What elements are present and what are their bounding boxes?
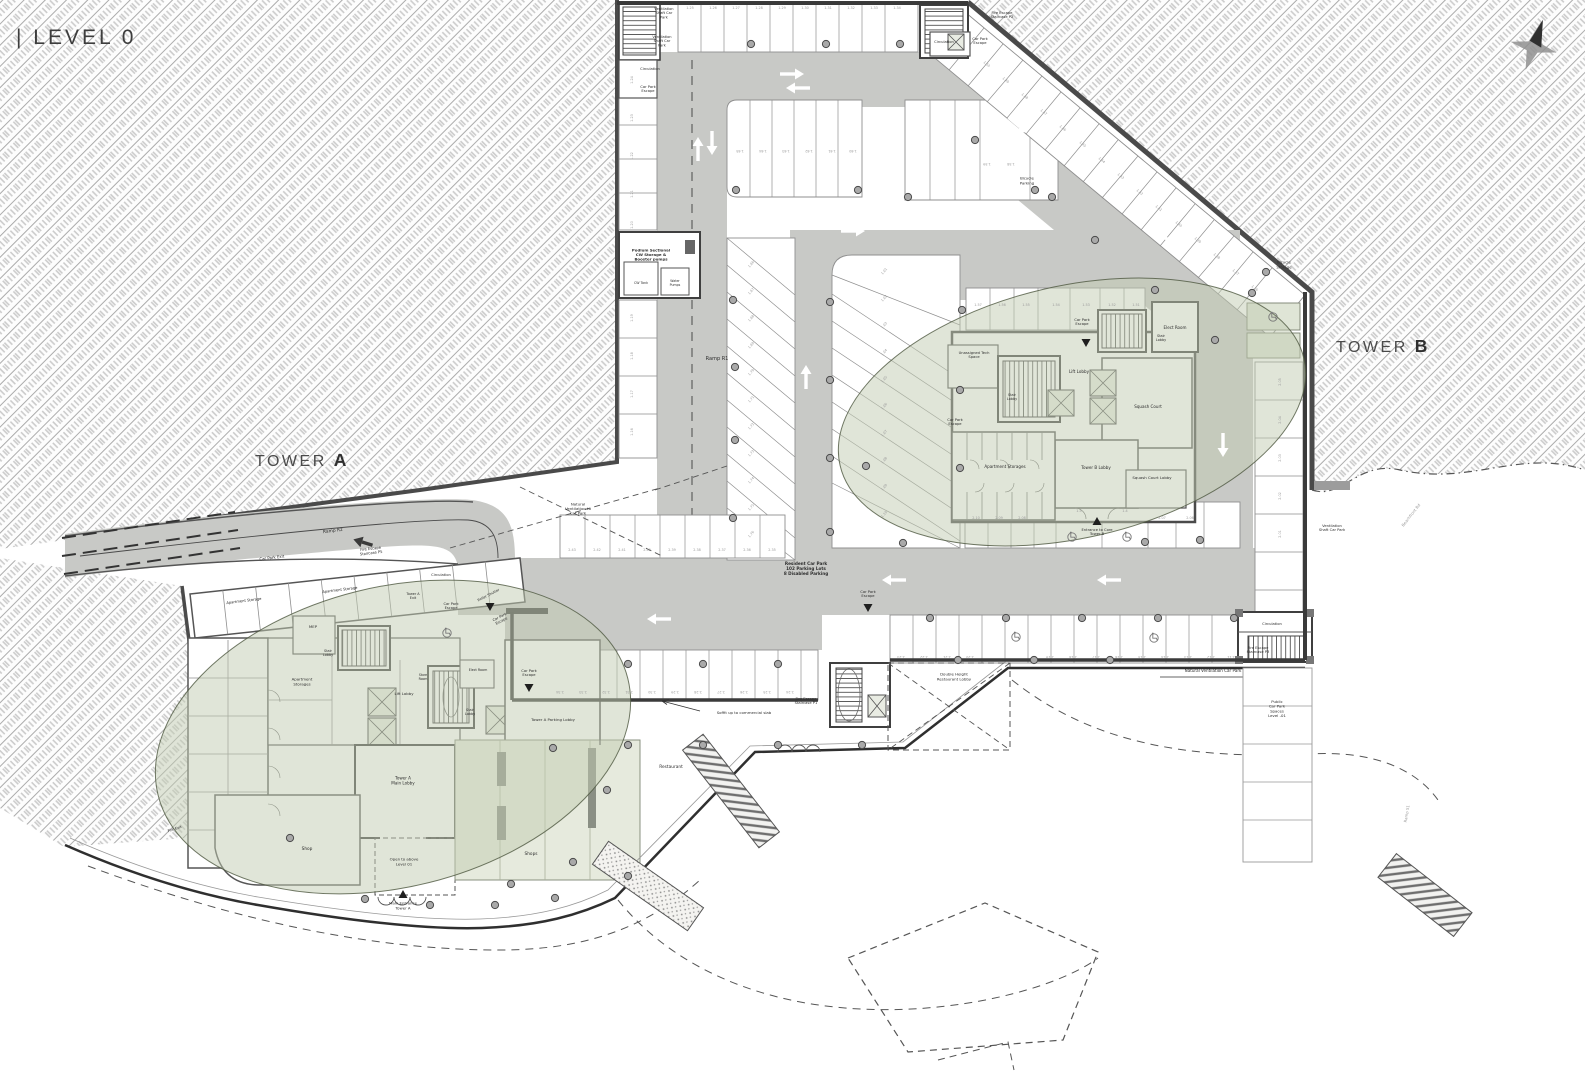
parking-space-number: 1.57: [974, 303, 982, 307]
column-dot: [699, 660, 706, 667]
parking-space-number: 1.58: [1007, 162, 1015, 166]
plan-label: Natural Ventilation Car Park: [1185, 668, 1242, 673]
column-dot: [491, 901, 498, 908]
column-dot: [899, 539, 906, 546]
plan-label: Circulation: [431, 573, 451, 577]
column-dot: [1048, 193, 1055, 200]
parking-space-number: 2.04: [1278, 416, 1282, 424]
column-dot: [361, 895, 368, 902]
column-dot: [1196, 536, 1203, 543]
column-dot: [551, 894, 558, 901]
column-dot: [1262, 268, 1269, 275]
plan-label: Circulation: [934, 40, 954, 44]
column-dot: [729, 296, 736, 303]
parking-space-number: 1.54: [1052, 303, 1060, 307]
tower-b-title-pre: TOWER: [1336, 339, 1408, 356]
parking-space-number: 1.19: [630, 314, 634, 322]
parking-space-number: 1.61: [828, 149, 836, 153]
parking-space-number: 2.22: [920, 655, 928, 659]
plan-label: Lift Lobby: [394, 691, 414, 696]
parking-space-number: 1.4: [1122, 509, 1127, 513]
parking-space-number: 1.62: [805, 149, 813, 153]
parking-space-number: 2.13: [1184, 655, 1192, 659]
column-dot: [624, 741, 631, 748]
plan-label: StairLobby: [465, 708, 475, 716]
parking-space-number: 1.16: [630, 428, 634, 436]
parking-space-number: 1.26: [709, 6, 717, 10]
parking-space-number: 2.33: [579, 690, 587, 694]
plan-label: Car ParkEscape: [1074, 318, 1090, 326]
parking-space-number: 2.11: [1227, 655, 1235, 659]
parking-space-number: 2.23: [897, 655, 905, 659]
parking-space-number: 2.39: [668, 548, 676, 552]
parking-space-number: 2.07: [1158, 516, 1166, 520]
parking-space-number: 1.65: [736, 149, 744, 153]
parking-space-number: 1.31: [824, 6, 832, 10]
column-dot: [732, 186, 739, 193]
plan-label: BicycleStorage: [1276, 260, 1292, 270]
plan-label: Car ParkEscape: [640, 85, 656, 93]
tower-b-title: TOWER B: [1336, 336, 1430, 357]
parking-space-number: 2.27: [717, 690, 725, 694]
parking-space-number: 1.64: [759, 149, 767, 153]
column-dot: [729, 514, 736, 521]
column-dot: [624, 660, 631, 667]
parking-space-number: 1.51: [1132, 303, 1140, 307]
column-dot: [507, 880, 514, 887]
tower-a-title-pre: TOWER: [255, 453, 327, 470]
plan-label: Squash Court Lobby: [1132, 475, 1172, 480]
parking-space-number: 1.21: [630, 190, 634, 198]
column-dot: [747, 40, 754, 47]
parking-space-number: 1.18: [630, 352, 634, 360]
plan-label: StairLobby: [323, 649, 333, 657]
plan-label: Elect Room: [469, 668, 488, 672]
parking-space-number: 1.32: [847, 6, 855, 10]
column-dot: [699, 741, 706, 748]
plan-label: Lift Lobby: [1069, 369, 1090, 374]
plan-label: Elect Room: [1163, 325, 1186, 330]
column-dot: [1230, 614, 1237, 621]
parking-space-number: 1.60: [849, 149, 857, 153]
parking-space-number: 2.16: [1115, 655, 1123, 659]
plan-label: Fire EscapeStaircase P1: [795, 697, 818, 705]
parking-space-number: 1.56: [998, 303, 1006, 307]
column-dot: [426, 901, 433, 908]
parking-space-number: 1.29: [778, 6, 786, 10]
column-dot: [971, 136, 978, 143]
column-dot: [822, 40, 829, 47]
column-dot: [1031, 186, 1038, 193]
parking-space-number: 2.05: [1278, 378, 1282, 386]
parking-space-number: 2.19: [1046, 655, 1054, 659]
plan-label: ApartmentStorages: [292, 677, 313, 687]
column-dot: [1030, 656, 1037, 663]
column-dot: [926, 614, 933, 621]
parking-space-number: 2.30: [648, 690, 656, 694]
parking-space-number: 2.42: [593, 548, 601, 552]
column-dot: [731, 436, 738, 443]
column-dot: [858, 741, 865, 748]
parking-space-number: 1.28: [755, 6, 763, 10]
parking-space-number: 1.30: [801, 6, 809, 10]
parking-space-number: 2.02: [1278, 492, 1282, 500]
parking-space-number: 1.23: [630, 114, 634, 122]
plan-label: Soffit up to commercial slab: [717, 710, 772, 715]
parking-space-number: 1.59: [983, 162, 991, 166]
plan-label: Circulation: [1262, 622, 1282, 626]
plan-label: Car ParkEscape: [947, 418, 963, 426]
plan-label: Fire EscapeStaircase P2: [991, 11, 1014, 19]
plan-label: Restaurant: [659, 764, 683, 770]
plan-label: StairLobby: [1156, 334, 1166, 342]
parking-space-number: 2.15: [1138, 655, 1146, 659]
parking-space-number: 1.33: [870, 6, 878, 10]
level-title: | LEVEL 0: [16, 26, 136, 50]
parking-space-number: 2.18: [1069, 655, 1077, 659]
tower-b-title-suffix: B: [1415, 336, 1430, 356]
parking-space-number: 2.31: [625, 690, 633, 694]
parking-space-number: 2.03: [1278, 454, 1282, 462]
parking-space-number: 2.37: [718, 548, 726, 552]
floor-plan-page: VentilationShaft CarParkVentilationShaft…: [0, 0, 1585, 1072]
column-dot: [1211, 336, 1218, 343]
plan-label: Car ParkEscape: [521, 669, 537, 677]
plan-label: BicycleParking: [1020, 176, 1035, 186]
plan-label: Fire EscapeStaircase P3: [1247, 646, 1270, 654]
column-dot: [954, 656, 961, 663]
plan-label: Double HeightRestaurant Lobby: [937, 672, 972, 682]
parking-space-number: 2.10: [972, 516, 980, 520]
parking-space-number: 2.36: [743, 548, 751, 552]
parking-space-number: 2.20: [966, 655, 974, 659]
column-dot: [826, 454, 833, 461]
column-dot: [1091, 236, 1098, 243]
plan-label: Car ParkEscape: [972, 37, 988, 45]
column-dot: [624, 872, 631, 879]
plan-label: StairLobby: [1007, 393, 1017, 401]
column-dot: [569, 858, 576, 865]
parking-space-number: 2.14: [1161, 655, 1169, 659]
tower-a-title: TOWER A: [255, 450, 349, 471]
plan-label: Apartment Storages: [984, 464, 1025, 469]
parking-space-number: 2.32: [602, 690, 610, 694]
column-dot: [774, 741, 781, 748]
parking-space-number: 2.06: [1186, 516, 1194, 520]
plan-label: Car ParkEscape: [443, 602, 459, 610]
parking-space-number: 2.29: [671, 690, 679, 694]
plan-label: WaterPumps: [670, 279, 681, 287]
plan-label: Circulation: [640, 67, 660, 71]
column-dot: [286, 834, 293, 841]
parking-space-number: 1.34: [893, 6, 901, 10]
plan-label: Squash Court: [1134, 404, 1162, 409]
column-dot: [603, 786, 610, 793]
parking-space-number: 2.38: [693, 548, 701, 552]
column-dot: [896, 40, 903, 47]
parking-space-number: 1.53: [1082, 303, 1090, 307]
parking-space-number: 2.28: [694, 690, 702, 694]
column-dot: [958, 306, 965, 313]
column-dot: [1002, 614, 1009, 621]
parking-space-number: 2.41: [618, 548, 626, 552]
plan-label: CW Tank: [634, 281, 648, 285]
parking-space-number: 1.55: [1022, 303, 1030, 307]
column-dot: [1078, 614, 1085, 621]
column-dot: [956, 464, 963, 471]
parking-space-number: 2.01: [1278, 530, 1282, 538]
column-dot: [1154, 614, 1161, 621]
parking-space-number: 2.25: [763, 690, 771, 694]
parking-space-number: 2.43: [568, 548, 576, 552]
parking-space-number: 2.24: [786, 690, 794, 694]
column-dot: [1106, 656, 1113, 663]
column-dot: [904, 193, 911, 200]
parking-space-number: 1.5: [1076, 509, 1081, 513]
parking-space-number: 2.21: [943, 655, 951, 659]
parking-space-number: 1.24: [630, 76, 634, 84]
column-dot: [549, 744, 556, 751]
tower-a-title-suffix: A: [334, 450, 349, 470]
parking-space-number: 1.52: [1108, 303, 1116, 307]
plan-label: Tower B Lobby: [1080, 465, 1111, 470]
column-dot: [956, 386, 963, 393]
parking-space-number: 1.20: [630, 221, 634, 229]
plan-label: Podium SectionalCW Storage &Booster pump…: [632, 247, 670, 261]
parking-space-number: 1.63: [782, 149, 790, 153]
parking-space-number: 2.40: [643, 548, 651, 552]
parking-space-number: 2.35: [768, 548, 776, 552]
parking-space-number: 2.34: [556, 690, 564, 694]
plan-label: Car ParkEscape: [860, 590, 876, 598]
parking-space-number: 2.26: [740, 690, 748, 694]
parking-space-number: 2.17: [1092, 655, 1100, 659]
column-dot: [826, 376, 833, 383]
column-dot: [826, 528, 833, 535]
column-dot: [854, 186, 861, 193]
parking-space-number: 1.27: [732, 6, 740, 10]
plan-label: StoreRoom: [419, 673, 428, 681]
parking-space-number: 2.08: [1018, 516, 1026, 520]
floor-plan-drawing: VentilationShaft CarParkVentilationShaft…: [0, 0, 1585, 1072]
column-dot: [862, 462, 869, 469]
column-dot: [1141, 538, 1148, 545]
parking-space-number: 1.17: [630, 390, 634, 398]
column-dot: [731, 363, 738, 370]
parking-space-number: 2.09: [995, 516, 1003, 520]
plan-label: Shop: [302, 846, 313, 852]
plan-label: Ramp R1: [706, 356, 729, 362]
plan-label: Resident Car Park102 Parking Lots8 Disab…: [784, 561, 828, 576]
column-dot: [826, 298, 833, 305]
plan-label: MEP: [309, 624, 318, 629]
plan-label: Tower A Parking Lobby: [530, 717, 575, 722]
parking-space-number: 1.22: [630, 152, 634, 160]
level-title-text: | LEVEL 0: [16, 26, 136, 49]
plan-label: Shops: [524, 851, 538, 857]
parking-space-number: 2.12: [1207, 655, 1215, 659]
parking-space-number: 1.25: [686, 6, 694, 10]
column-dot: [1151, 286, 1158, 293]
column-dot: [774, 660, 781, 667]
